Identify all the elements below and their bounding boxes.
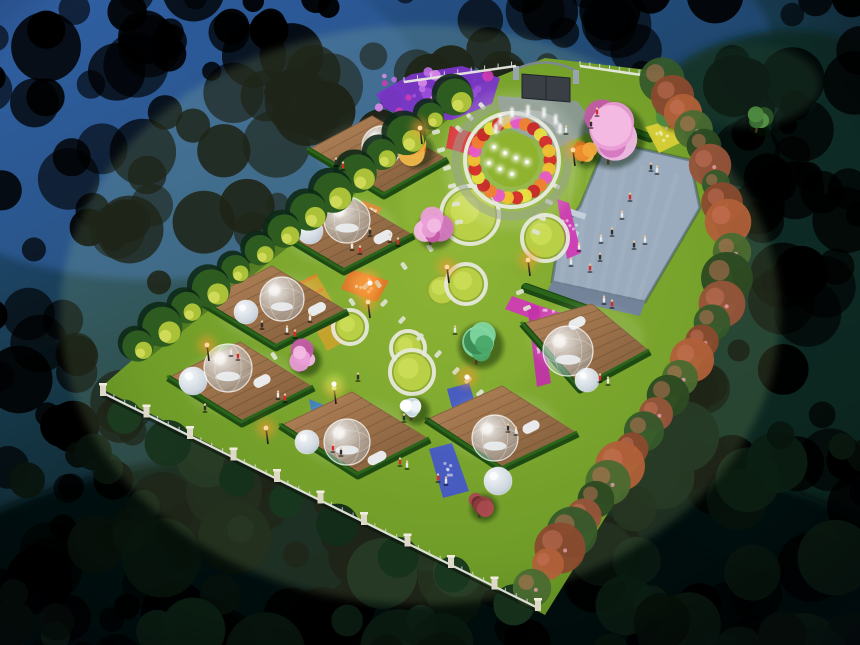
glamping-park-rendering bbox=[0, 0, 860, 645]
scene-svg bbox=[0, 0, 860, 645]
vignette bbox=[0, 0, 860, 645]
